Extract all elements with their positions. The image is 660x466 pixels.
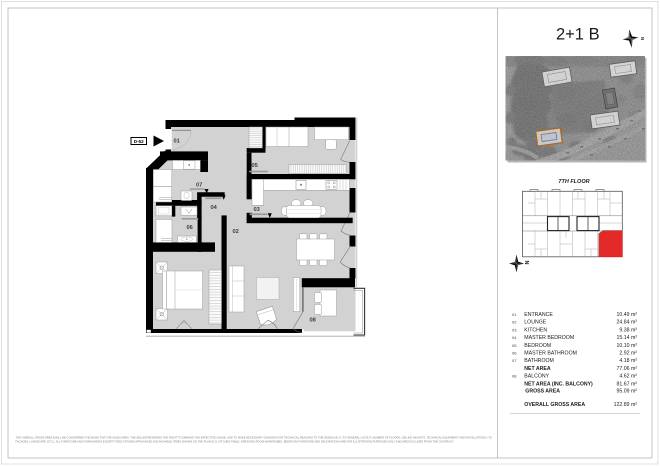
svg-text:02: 02 [233,229,239,235]
svg-text:THE OVERALL GROSS AREA SHALL B: THE OVERALL GROSS AREA SHALL BE CONSIDER… [16,436,492,440]
svg-text:4.62 m²: 4.62 m² [619,374,637,380]
svg-text:2.92 m²: 2.92 m² [619,351,637,357]
svg-text:05: 05 [512,343,517,348]
svg-text:81.67 m²: 81.67 m² [617,381,638,387]
svg-text:24.84 m²: 24.84 m² [617,320,638,326]
svg-text:FACADES, LANDSCAPE, ETC.). ALL: FACADES, LANDSCAPE, ETC.). ALL FURNITURE… [16,440,455,444]
svg-text:ENTRANCE: ENTRANCE [524,312,553,318]
svg-text:08: 08 [310,318,316,324]
svg-text:08: 08 [512,374,517,379]
svg-text:03: 03 [254,207,260,213]
svg-text:77.06 m²: 77.06 m² [617,366,638,372]
svg-text:06: 06 [512,351,517,356]
svg-text:D-52: D-52 [134,139,144,144]
svg-text:04: 04 [211,205,218,211]
svg-text:LOUNGE: LOUNGE [524,320,546,326]
svg-text:KITCHEN: KITCHEN [524,327,547,333]
svg-text:7TH FLOOR: 7TH FLOOR [558,179,589,185]
svg-text:BALCONY: BALCONY [524,374,549,380]
svg-text:NET AREA (INC. BALCONY): NET AREA (INC. BALCONY) [524,381,593,387]
svg-text:4.18 m²: 4.18 m² [619,358,637,364]
svg-text:122.89 m²: 122.89 m² [614,402,638,408]
svg-text:04: 04 [512,335,517,340]
svg-text:10.10 m²: 10.10 m² [617,343,638,349]
svg-text:NET AREA: NET AREA [524,366,551,372]
svg-text:07: 07 [196,183,202,189]
svg-text:GROSS AREA: GROSS AREA [525,388,560,394]
svg-text:07: 07 [512,358,517,363]
svg-text:BATHROOM: BATHROOM [524,358,554,364]
svg-text:2+1 B: 2+1 B [556,26,600,44]
svg-text:02: 02 [512,320,517,325]
svg-text:10.49 m²: 10.49 m² [617,312,638,318]
svg-text:BEDROOM: BEDROOM [524,343,551,349]
svg-text:9.38 m²: 9.38 m² [619,327,637,333]
svg-text:05: 05 [252,163,258,169]
svg-text:01: 01 [512,312,517,317]
svg-text:N: N [523,261,529,265]
svg-text:01: 01 [174,139,180,145]
svg-text:06: 06 [187,225,193,231]
svg-text:15.14 m²: 15.14 m² [617,335,638,341]
svg-text:MASTER BATHROOM: MASTER BATHROOM [524,351,577,357]
svg-text:95.09 m²: 95.09 m² [617,388,638,394]
svg-text:MASTER BEDROOM: MASTER BEDROOM [524,335,574,341]
svg-text:OVERALL GROSS AREA: OVERALL GROSS AREA [524,402,585,408]
svg-text:03: 03 [512,327,517,332]
